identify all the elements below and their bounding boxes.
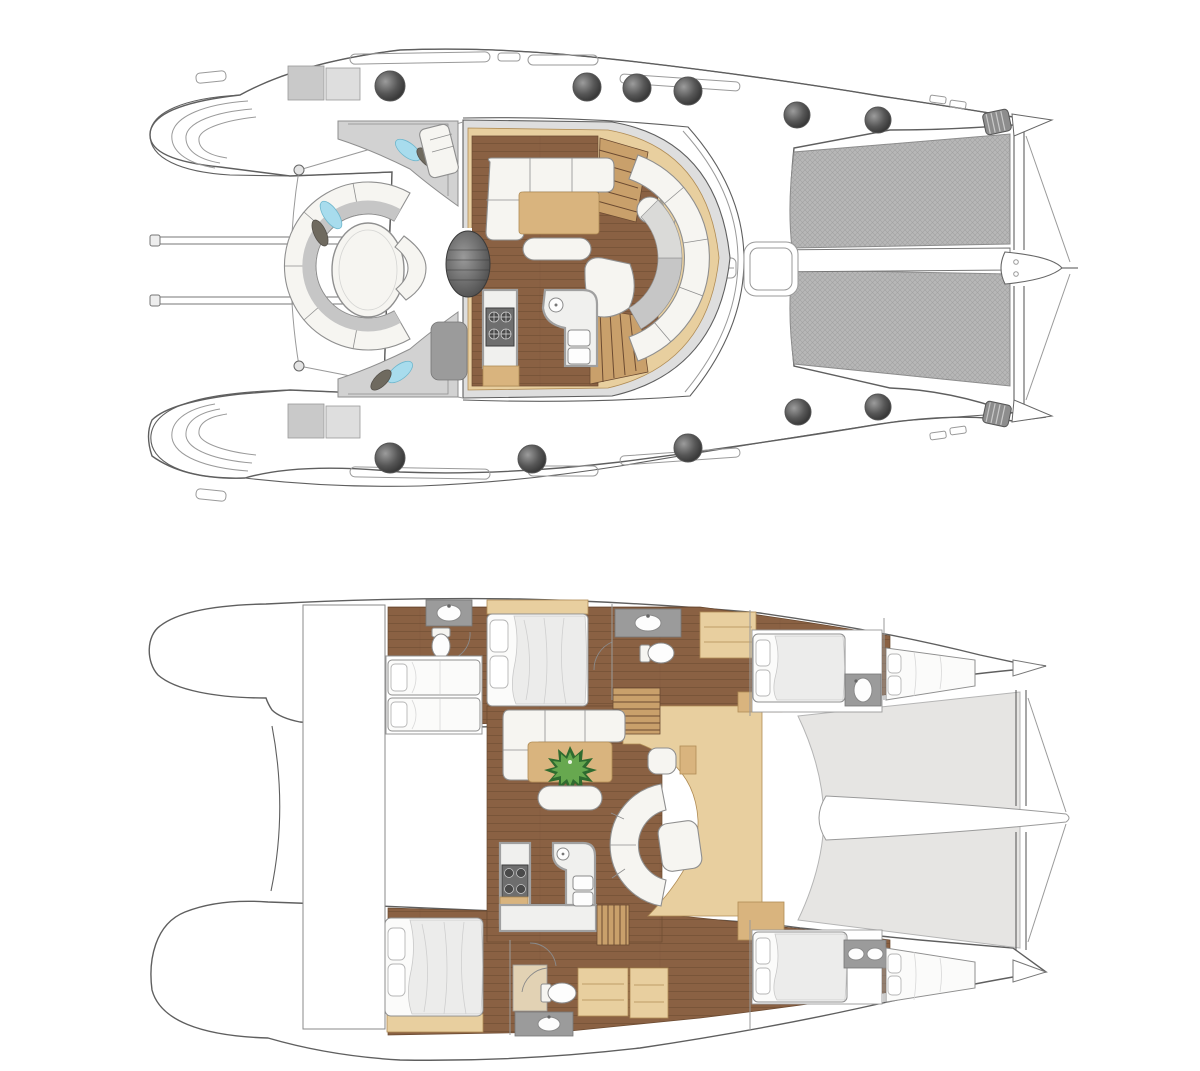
- bowsprit: [1001, 252, 1062, 284]
- bow-tip-starboard: [1012, 400, 1052, 422]
- salon-ottoman: [523, 238, 591, 260]
- wardrobe-starboard-1: [578, 968, 628, 1016]
- stove: [486, 308, 514, 346]
- stove-lower: [502, 865, 528, 897]
- cockpit-gray-pad: [431, 322, 467, 380]
- lower-deck-view: [149, 599, 1069, 1061]
- twin-cabin-port: [386, 656, 482, 734]
- bow-tip-port: [1012, 114, 1052, 136]
- upper-deck-view: [149, 49, 1079, 501]
- boat-floorplan-page: [0, 0, 1200, 1071]
- stern-bridge-curve: [271, 726, 280, 891]
- stairs-down: [597, 905, 629, 945]
- wardrobe-starboard-2: [630, 968, 668, 1018]
- cockpit-table: [332, 223, 404, 317]
- trampoline-port: [790, 134, 1010, 248]
- wardrobe-port: [700, 612, 756, 658]
- fwd-twin-sinks-starboard: [844, 940, 886, 968]
- master-cabin-port: [487, 600, 588, 706]
- lower-ottoman: [538, 786, 602, 810]
- trampoline-starboard: [790, 270, 1010, 386]
- lower-salon: [487, 688, 762, 945]
- nav-desk: [680, 746, 696, 774]
- galley-sink-2: [568, 348, 590, 364]
- anchor-roller-starboard: [982, 401, 1012, 428]
- salon-table: [519, 192, 599, 234]
- galley-sink-1: [568, 330, 590, 346]
- anchor-roller-port: [982, 109, 1012, 136]
- salon: [446, 120, 730, 398]
- aft-section-band: [303, 605, 385, 1029]
- companionway-cover: [446, 231, 490, 297]
- nav-stool: [648, 748, 676, 774]
- galley-cabinet: [483, 366, 519, 386]
- foredeck-console: [744, 242, 798, 296]
- duvet: [512, 616, 586, 704]
- davit-rail-lower: [150, 295, 368, 306]
- floorplan-svg: [0, 0, 1200, 1071]
- aft-master-cabin-starboard: [385, 918, 483, 1032]
- davit-rail-upper: [150, 235, 368, 246]
- fwd-sink-port: [845, 674, 881, 706]
